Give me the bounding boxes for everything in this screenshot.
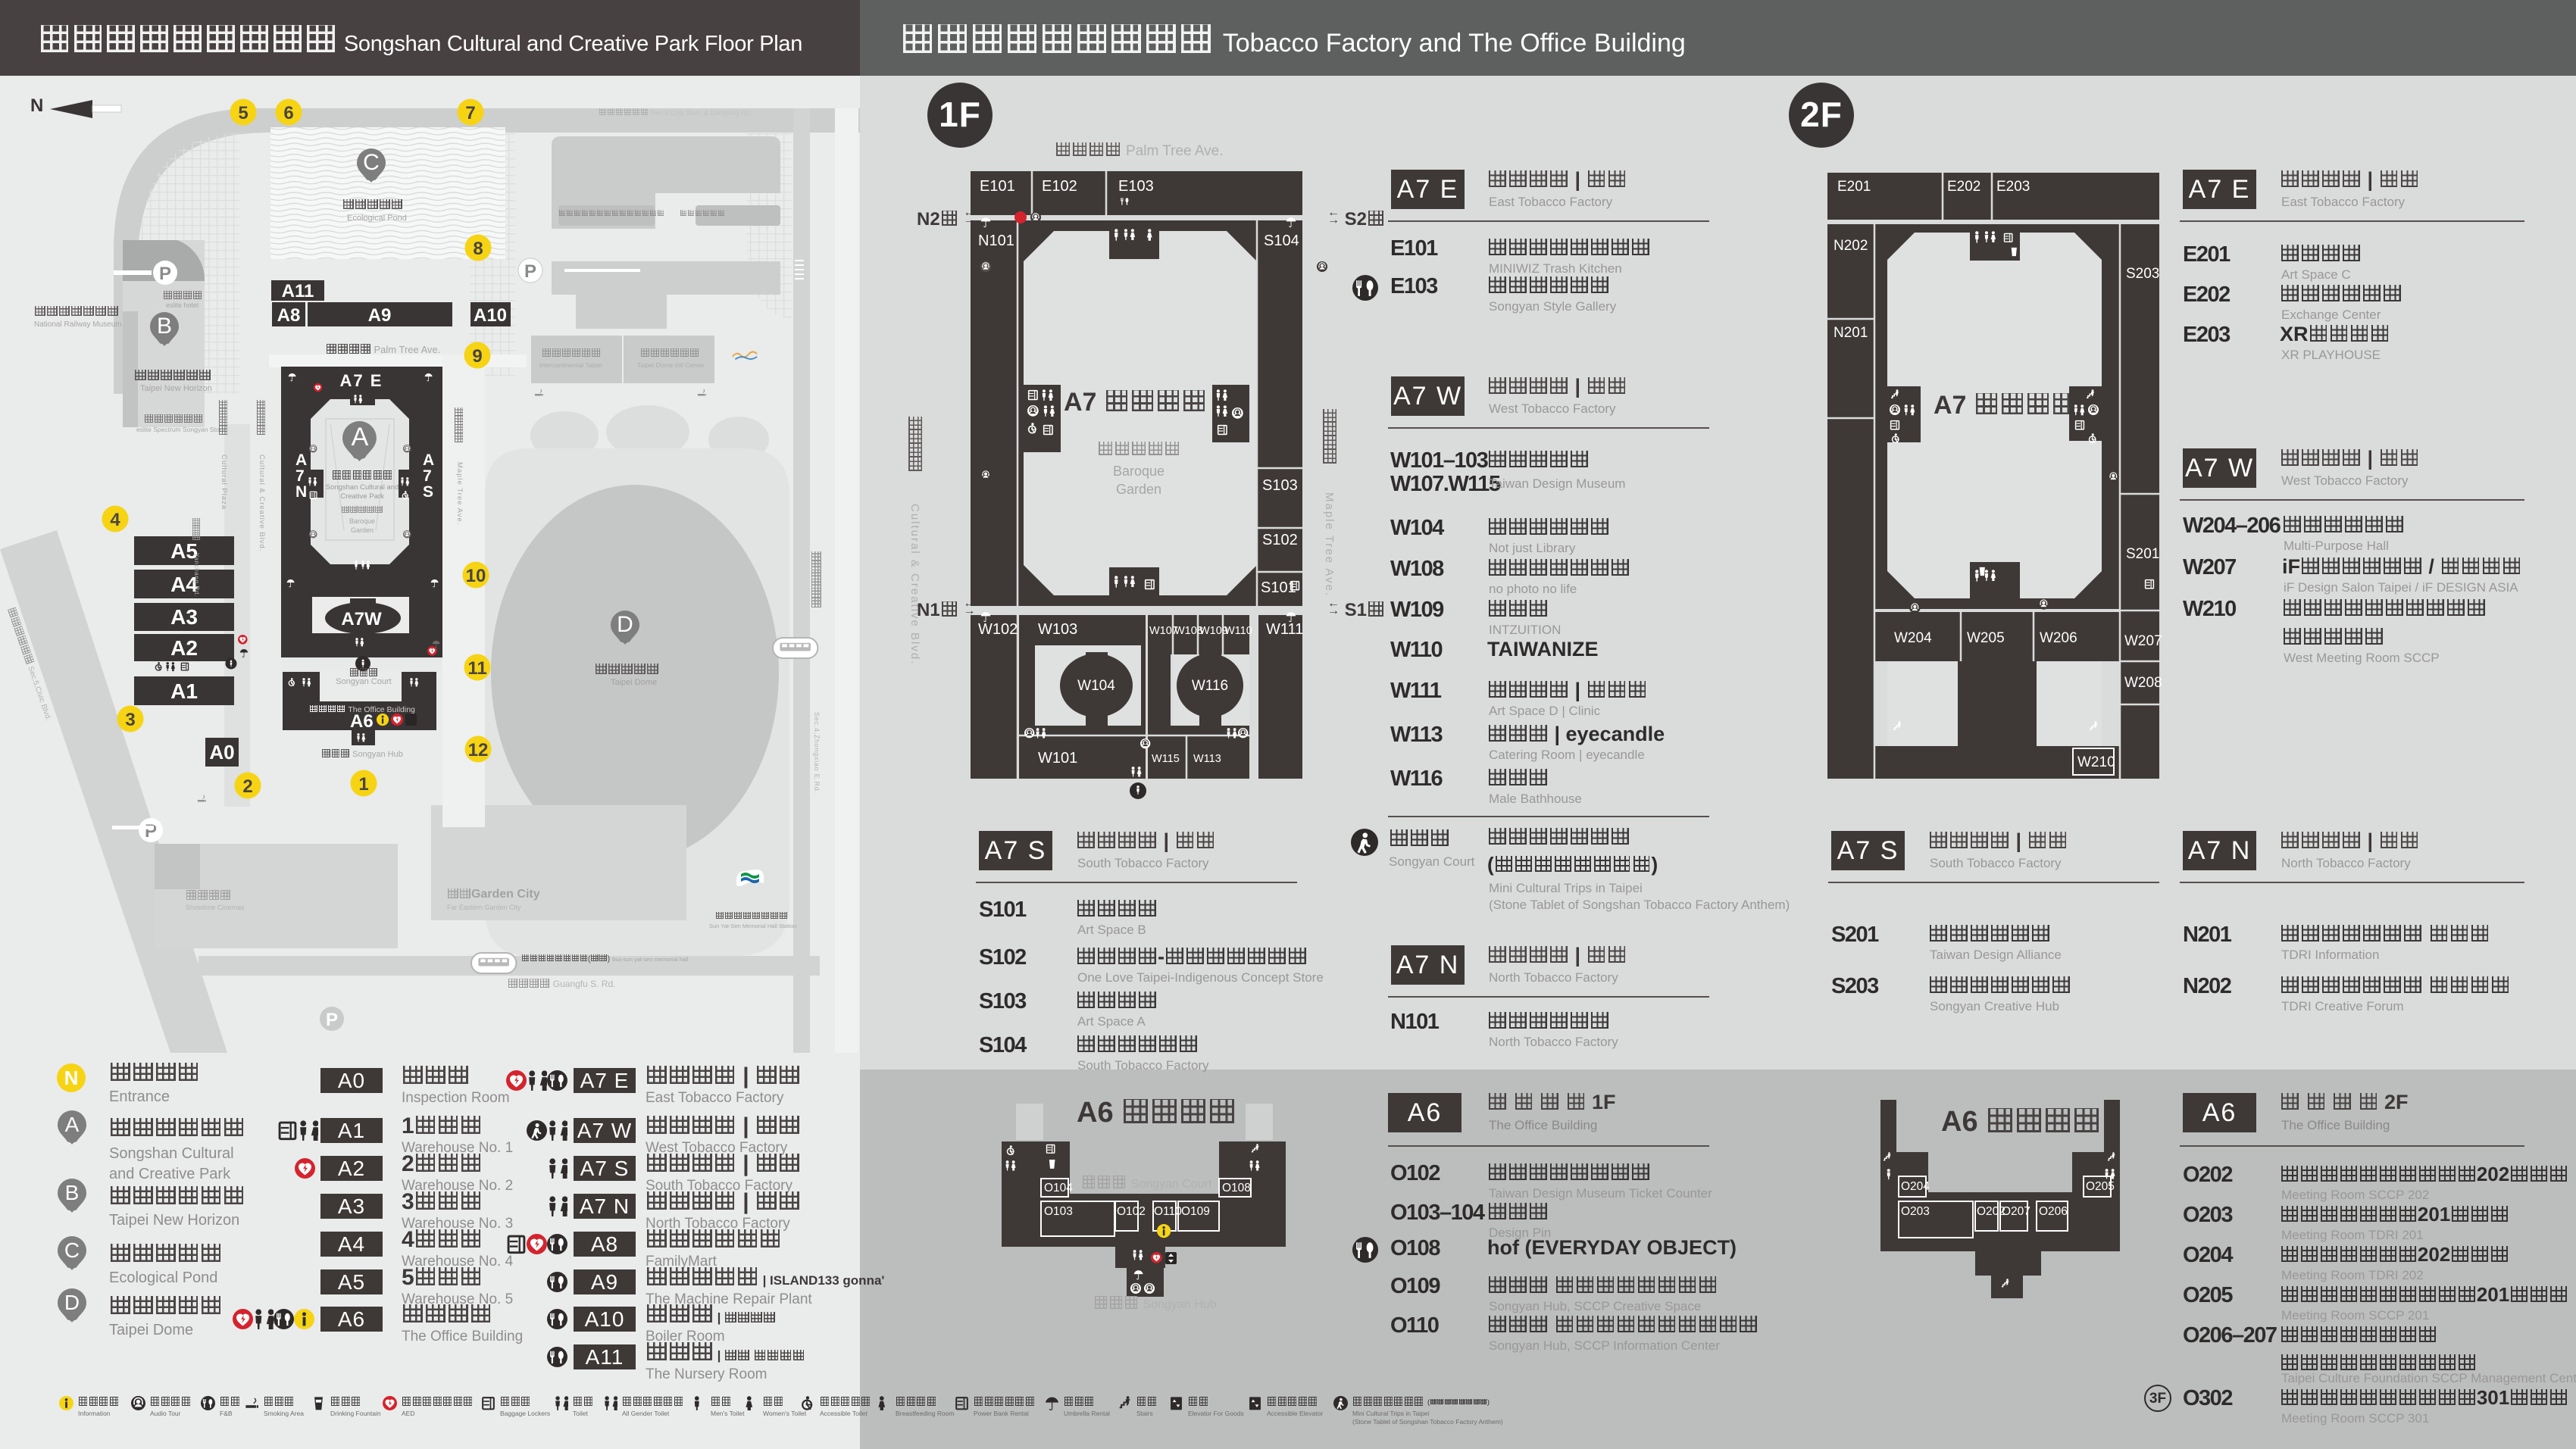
svg-text:A8: A8	[277, 305, 301, 326]
svg-text:W111: W111	[1266, 621, 1303, 638]
svg-text:N: N	[295, 483, 307, 501]
svg-text:O205: O205	[2086, 1180, 2115, 1193]
svg-text:W208: W208	[2124, 675, 2162, 691]
svg-text:A7W: A7W	[341, 609, 382, 629]
svg-text:A: A	[352, 423, 369, 451]
svg-text:W102: W102	[978, 621, 1018, 638]
svg-text:A: A	[65, 1113, 80, 1136]
svg-text:O102: O102	[1117, 1205, 1146, 1218]
svg-text:W103: W103	[1038, 621, 1077, 638]
svg-text:W206: W206	[2040, 630, 2077, 646]
svg-text:E101: E101	[980, 178, 1015, 195]
svg-text:W207: W207	[2124, 633, 2162, 649]
svg-text:5: 5	[238, 103, 248, 123]
svg-text:A2: A2	[170, 636, 198, 660]
svg-text:O204: O204	[1901, 1180, 1930, 1193]
svg-text:A: A	[423, 451, 434, 469]
svg-text:7: 7	[423, 467, 432, 485]
svg-text:S104: S104	[1264, 233, 1299, 249]
svg-text:A6: A6	[350, 711, 374, 732]
svg-text:W113: W113	[1193, 753, 1221, 765]
svg-text:W204: W204	[1894, 630, 1932, 646]
svg-text:6: 6	[283, 103, 293, 123]
svg-text:W101: W101	[1038, 750, 1077, 767]
svg-text:P: P	[524, 261, 536, 282]
svg-text:S102: S102	[1262, 532, 1298, 548]
svg-text:S201: S201	[2126, 546, 2159, 562]
svg-text:7: 7	[295, 467, 305, 485]
svg-text:N202: N202	[1834, 238, 1868, 254]
svg-text:2: 2	[242, 776, 252, 797]
svg-text:A9: A9	[368, 305, 392, 326]
svg-text:11: 11	[467, 658, 486, 679]
svg-text:S203: S203	[2126, 266, 2159, 282]
svg-text:E201: E201	[1837, 179, 1871, 195]
svg-text:C: C	[64, 1238, 80, 1262]
svg-text:S103: S103	[1262, 477, 1298, 494]
svg-text:O108: O108	[1222, 1182, 1251, 1194]
svg-text:7: 7	[465, 103, 475, 123]
svg-text:A0: A0	[209, 741, 234, 764]
svg-text:S: S	[423, 483, 433, 501]
svg-text:P: P	[145, 821, 157, 842]
svg-text:O110: O110	[1154, 1205, 1182, 1218]
svg-text:E202: E202	[1947, 179, 1980, 195]
svg-text:E103: E103	[1118, 178, 1154, 195]
svg-text:A10: A10	[474, 305, 507, 326]
svg-text:A: A	[295, 451, 307, 469]
svg-text:N201: N201	[1834, 325, 1868, 341]
svg-text:A1: A1	[170, 679, 198, 703]
svg-text:A3: A3	[170, 605, 198, 629]
svg-text:O203: O203	[1901, 1205, 1930, 1218]
svg-text:W104: W104	[1077, 678, 1115, 694]
svg-text:P: P	[159, 264, 171, 284]
svg-text:O103: O103	[1044, 1205, 1073, 1218]
svg-text:A11: A11	[282, 281, 314, 301]
svg-text:D: D	[64, 1291, 80, 1314]
svg-text:12: 12	[468, 740, 489, 760]
svg-text:4: 4	[110, 510, 120, 530]
svg-text:W116: W116	[1192, 678, 1228, 694]
svg-text:10: 10	[466, 566, 486, 586]
svg-text:W210: W210	[2077, 754, 2115, 770]
svg-text:E102: E102	[1042, 178, 1077, 195]
svg-text:B: B	[65, 1181, 80, 1204]
svg-text:A7 E: A7 E	[340, 371, 383, 390]
svg-text:O104: O104	[1044, 1182, 1073, 1194]
svg-text:O109: O109	[1181, 1205, 1210, 1218]
svg-text:9: 9	[472, 346, 482, 367]
svg-text:P: P	[326, 1010, 338, 1030]
svg-text:C: C	[363, 150, 380, 175]
svg-text:O206: O206	[2039, 1205, 2068, 1218]
svg-text:W115: W115	[1152, 753, 1180, 765]
svg-text:O207: O207	[2002, 1205, 2030, 1218]
svg-text:N101: N101	[978, 233, 1014, 249]
svg-text:1: 1	[358, 774, 368, 795]
svg-text:8: 8	[473, 239, 483, 259]
svg-text:B: B	[157, 314, 172, 339]
svg-text:D: D	[617, 612, 633, 637]
svg-text:3: 3	[125, 710, 135, 730]
svg-text:W205: W205	[1967, 630, 2005, 646]
svg-text:W110: W110	[1224, 625, 1252, 637]
svg-text:E203: E203	[1996, 179, 2030, 195]
